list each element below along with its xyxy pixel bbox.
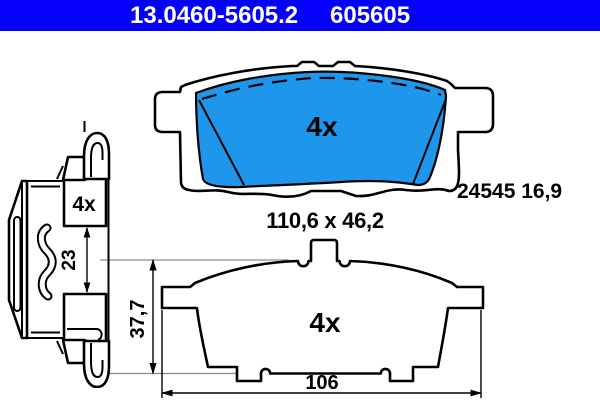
bottom-clip-body xyxy=(64,294,106,342)
header-bar: 13.0460-5605.2 605605 xyxy=(0,0,600,31)
gap-dimension-value: 23 xyxy=(59,249,80,270)
top-clip-hook xyxy=(84,133,109,179)
quantity-label-front: 4x xyxy=(306,111,338,142)
plate-drawing: 37,7 106 4x xyxy=(95,233,505,400)
height-dimension-value: 37,7 xyxy=(127,300,149,339)
gap-arrow-up xyxy=(84,227,91,238)
arrowhead-right xyxy=(471,390,483,397)
arrowhead-down xyxy=(149,363,156,375)
part-number: 13.0460-5605.2 xyxy=(130,0,298,31)
pad-size-label: 110,6 x 46,2 xyxy=(245,208,405,234)
wva-thickness-code: 24545 16,9 xyxy=(457,180,562,204)
quantity-label-back: 4x xyxy=(309,307,341,338)
accessory-drawing: 4x 23 xyxy=(2,116,120,388)
bottom-clip-hook xyxy=(84,341,109,387)
arrowhead-up xyxy=(149,259,156,271)
clip-tab-tick-bottom xyxy=(57,341,63,354)
reference-number: 605605 xyxy=(330,0,410,31)
friction-pad-drawing: 4x xyxy=(148,54,500,206)
clip-tab-tick-top xyxy=(57,166,63,179)
product-drawing-canvas: 13.0460-5605.2 605605 4x 24545 16,9 110,… xyxy=(0,0,600,400)
quantity-label-accessory: 4x xyxy=(72,193,96,216)
width-dimension-value: 106 xyxy=(305,372,338,394)
arrowhead-left xyxy=(161,390,173,397)
gap-arrow-down xyxy=(84,283,91,294)
plate-side-view xyxy=(9,181,27,338)
